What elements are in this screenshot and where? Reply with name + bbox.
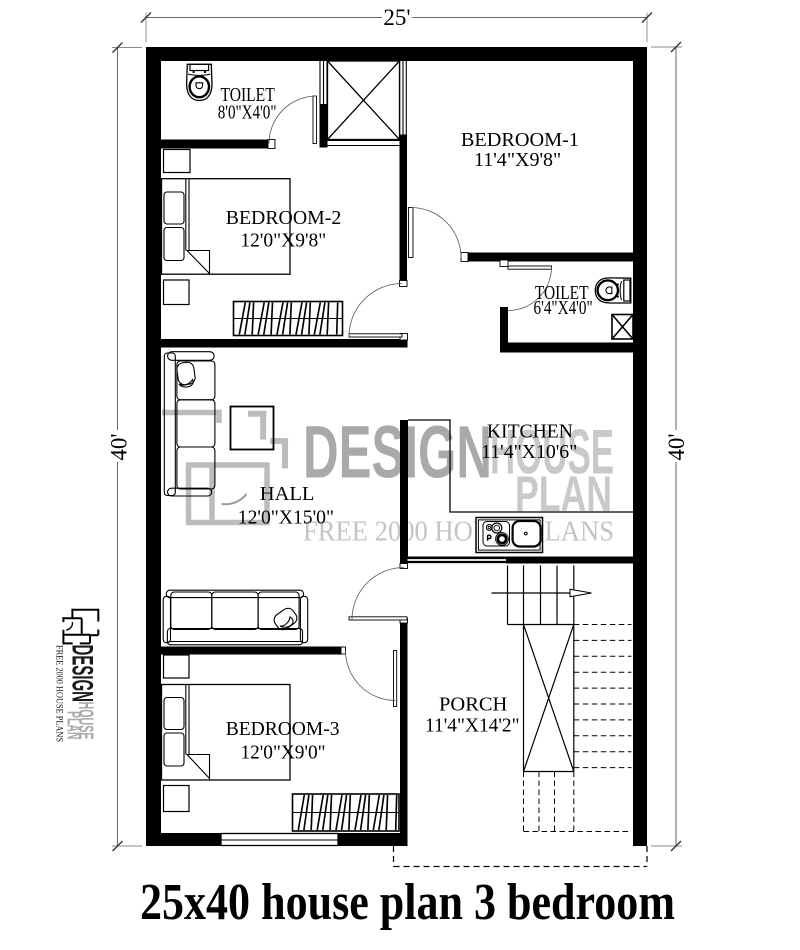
svg-text:PLAN: PLAN bbox=[63, 711, 84, 740]
svg-text:11'4"X10'6": 11'4"X10'6" bbox=[481, 441, 577, 463]
svg-text:12'0"X15'0": 12'0"X15'0" bbox=[238, 507, 334, 529]
svg-text:12'0"X9'0": 12'0"X9'0" bbox=[240, 742, 325, 764]
svg-text:DESIGN: DESIGN bbox=[66, 645, 99, 703]
svg-text:PORCH: PORCH bbox=[439, 694, 507, 716]
svg-text:8'0"X4'0": 8'0"X4'0" bbox=[218, 102, 277, 124]
svg-text:PLAN: PLAN bbox=[515, 466, 612, 522]
svg-text:40': 40' bbox=[664, 433, 689, 460]
svg-text:BEDROOM-1: BEDROOM-1 bbox=[461, 129, 579, 151]
svg-text:25': 25' bbox=[383, 5, 410, 30]
svg-text:6'4"X4'0": 6'4"X4'0" bbox=[534, 297, 593, 319]
svg-text:HALL: HALL bbox=[260, 483, 315, 505]
svg-text:11'4"X9'8": 11'4"X9'8" bbox=[474, 149, 561, 171]
svg-text:FREE 2000 HOUSE PLANS: FREE 2000 HOUSE PLANS bbox=[303, 516, 614, 548]
svg-text:FREE 2000 HOUSE PLANS: FREE 2000 HOUSE PLANS bbox=[54, 645, 64, 742]
svg-text:DESIGN: DESIGN bbox=[303, 411, 492, 494]
svg-text:25x40 house plan 3 bedroom: 25x40 house plan 3 bedroom bbox=[140, 874, 675, 931]
svg-text:12'0"X9'8": 12'0"X9'8" bbox=[240, 230, 326, 252]
svg-text:11'4"X14'2": 11'4"X14'2" bbox=[425, 715, 520, 737]
svg-text:BEDROOM-2: BEDROOM-2 bbox=[226, 207, 342, 229]
svg-text:40': 40' bbox=[107, 433, 132, 460]
svg-text:KITCHEN: KITCHEN bbox=[487, 421, 573, 443]
svg-text:BEDROOM-3: BEDROOM-3 bbox=[226, 718, 340, 740]
